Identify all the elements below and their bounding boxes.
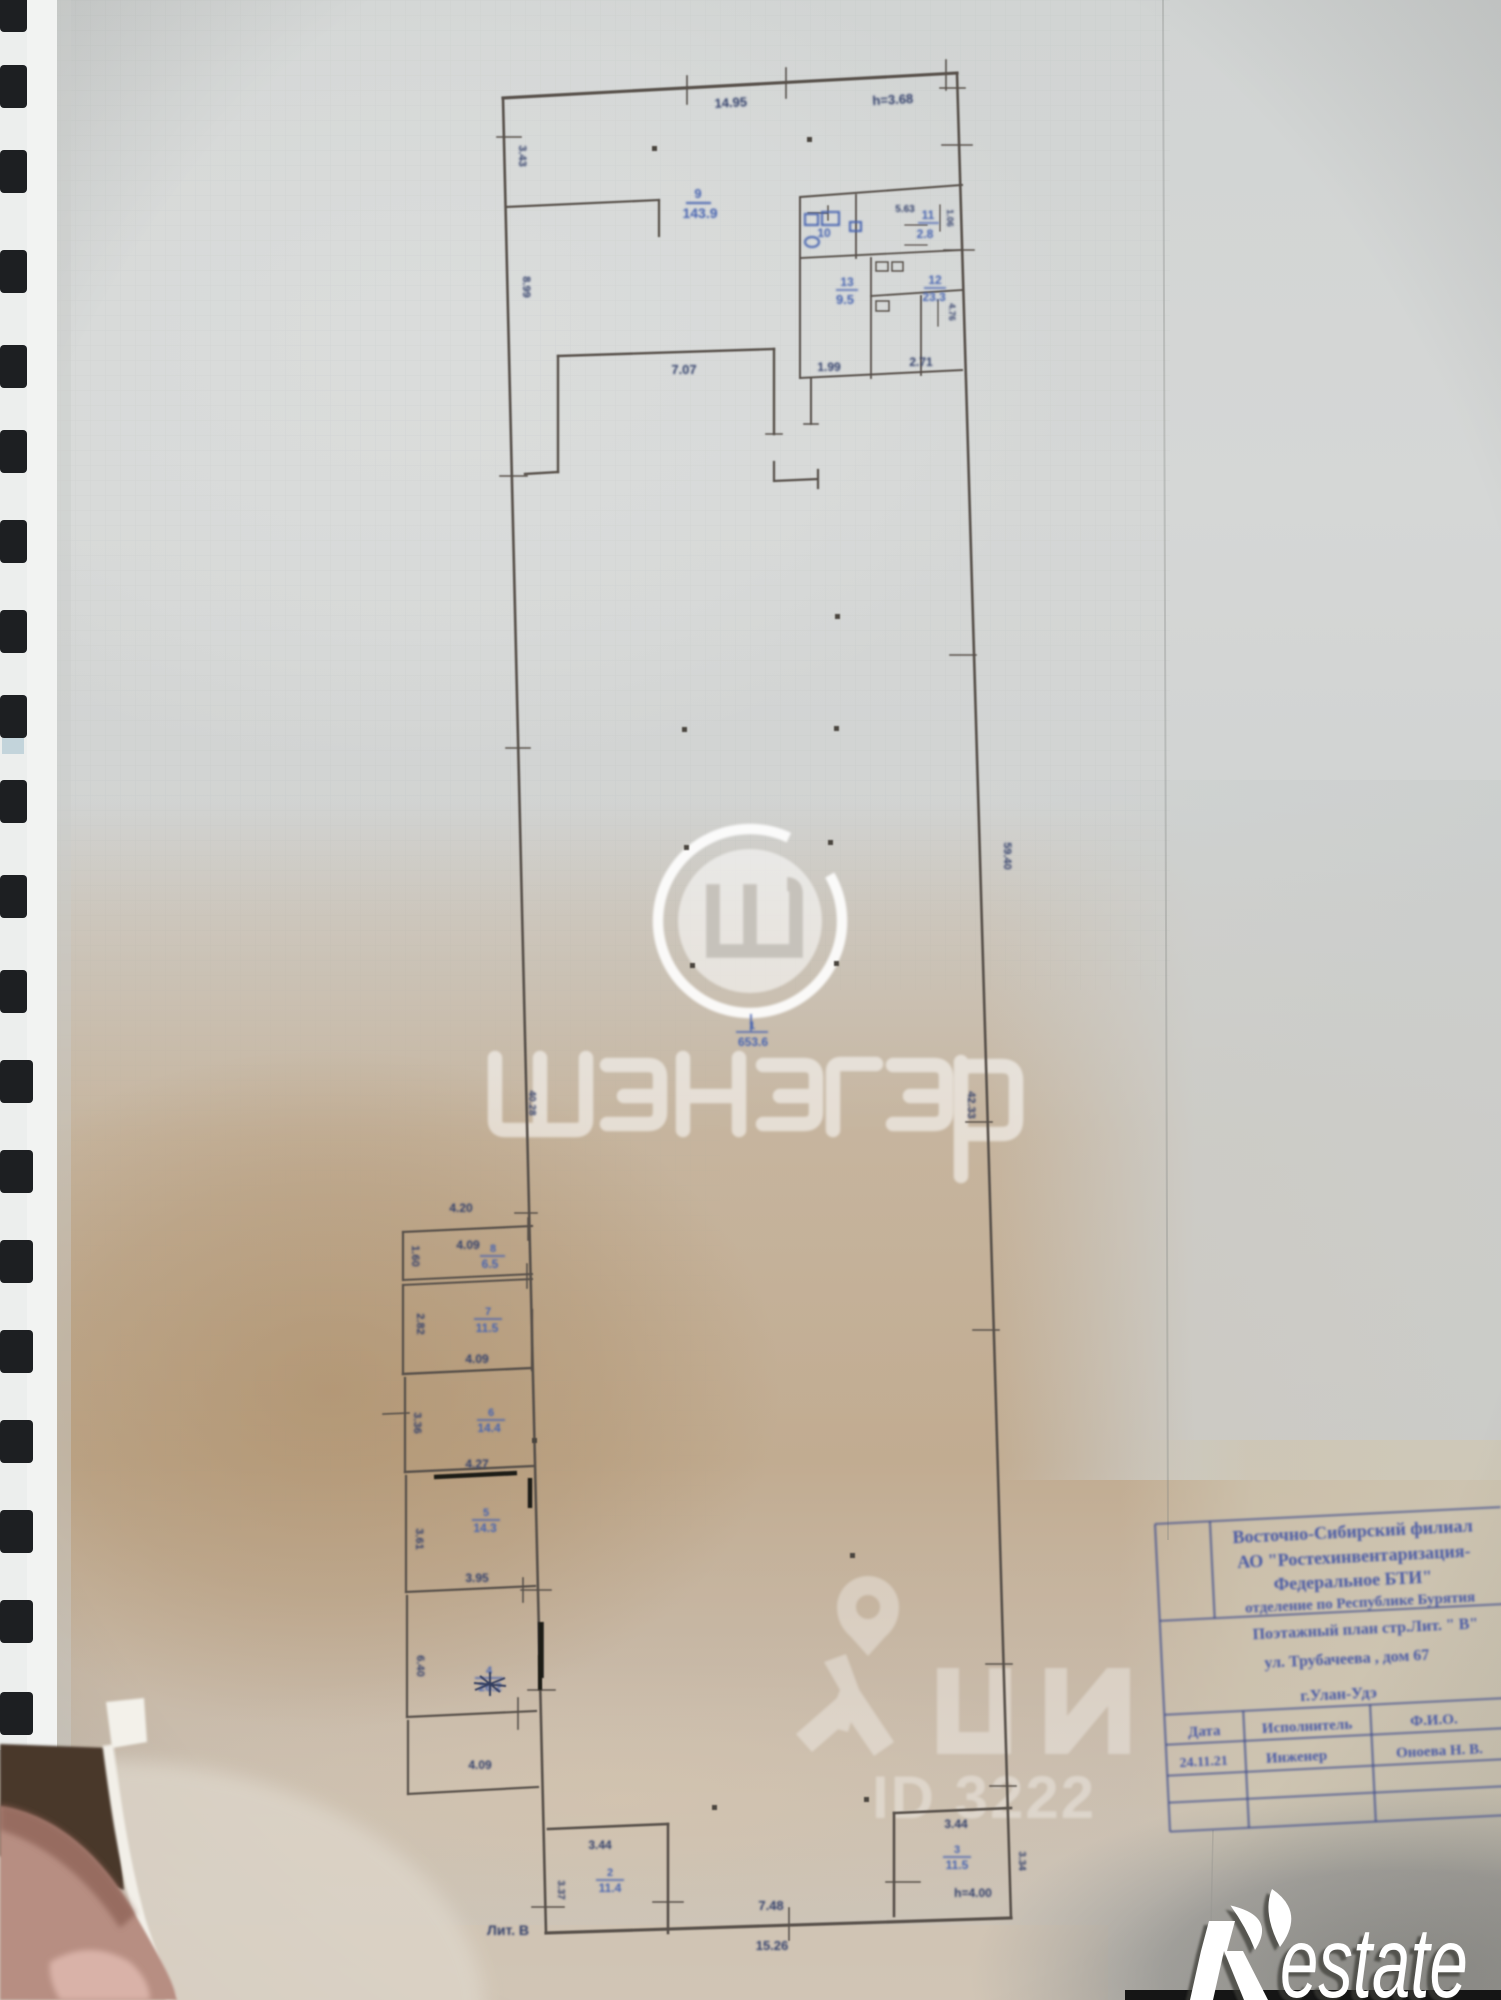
svg-text:11.4: 11.4 xyxy=(599,1881,622,1895)
svg-text:1: 1 xyxy=(749,1020,755,1032)
svg-text:11: 11 xyxy=(922,208,935,222)
svg-text:8.99: 8.99 xyxy=(520,276,532,297)
svg-text:9: 9 xyxy=(694,186,701,201)
svg-text:12: 12 xyxy=(928,273,942,287)
svg-text:4.76: 4.76 xyxy=(947,303,957,321)
svg-text:7.07: 7.07 xyxy=(671,362,696,377)
svg-text:3.36: 3.36 xyxy=(411,1412,423,1433)
svg-text:11.5: 11.5 xyxy=(946,1858,969,1872)
svg-text:1.99: 1.99 xyxy=(817,360,841,374)
svg-text:3.95: 3.95 xyxy=(465,1571,489,1585)
svg-text:2.82: 2.82 xyxy=(414,1313,426,1334)
svg-text:3: 3 xyxy=(954,1844,960,1856)
svg-text:3.43: 3.43 xyxy=(516,145,528,166)
svg-text:23.3: 23.3 xyxy=(922,290,946,304)
svg-text:1.06: 1.06 xyxy=(945,209,955,227)
svg-text:3.44: 3.44 xyxy=(944,1817,968,1831)
svg-text:40.28: 40.28 xyxy=(526,1090,537,1115)
svg-text:6.40: 6.40 xyxy=(414,1655,426,1676)
svg-text:13: 13 xyxy=(840,275,854,289)
svg-text:6.5: 6.5 xyxy=(482,1257,499,1271)
svg-text:6: 6 xyxy=(488,1407,494,1419)
svg-text:h=3.68: h=3.68 xyxy=(872,91,914,108)
svg-text:estate: estate xyxy=(1280,1907,1468,2000)
svg-text:4.09: 4.09 xyxy=(465,1352,489,1366)
svg-text:Ф.И.О.: Ф.И.О. xyxy=(1410,1711,1458,1729)
svg-text:1.60: 1.60 xyxy=(409,1245,421,1266)
svg-text:653.6: 653.6 xyxy=(738,1035,768,1049)
svg-text:3.37: 3.37 xyxy=(555,1880,566,1900)
svg-text:11.5: 11.5 xyxy=(476,1321,499,1335)
svg-text:24.11.21: 24.11.21 xyxy=(1179,1754,1228,1771)
svg-text:Лит. В: Лит. В xyxy=(487,1922,529,1938)
svg-text:14.95: 14.95 xyxy=(714,94,747,111)
svg-text:5.63: 5.63 xyxy=(895,204,915,215)
svg-text:9.5: 9.5 xyxy=(836,292,854,307)
svg-text:143.9: 143.9 xyxy=(682,205,717,221)
svg-text:7.48: 7.48 xyxy=(758,1898,783,1913)
svg-text:2.71: 2.71 xyxy=(909,355,933,369)
svg-text:4.09: 4.09 xyxy=(468,1758,492,1772)
svg-text:7: 7 xyxy=(485,1306,491,1318)
svg-text:2: 2 xyxy=(607,1867,613,1879)
svg-text:10: 10 xyxy=(817,226,831,240)
svg-text:3.44: 3.44 xyxy=(588,1838,612,1852)
svg-text:15.26: 15.26 xyxy=(756,1938,789,1953)
svg-text:59.40: 59.40 xyxy=(1001,842,1013,870)
svg-text:5: 5 xyxy=(483,1507,489,1519)
svg-text:3.34: 3.34 xyxy=(1016,1851,1027,1871)
svg-text:3.61: 3.61 xyxy=(413,1528,425,1549)
svg-text:14.4: 14.4 xyxy=(477,1421,501,1435)
svg-text:8: 8 xyxy=(490,1243,496,1255)
svg-text:4.27: 4.27 xyxy=(465,1457,489,1471)
svg-text:14.3: 14.3 xyxy=(473,1521,497,1535)
svg-text:4.20: 4.20 xyxy=(449,1201,473,1215)
svg-text:h=4.00: h=4.00 xyxy=(954,1886,992,1900)
svg-text:42.33: 42.33 xyxy=(965,1091,977,1119)
svg-text:2.8: 2.8 xyxy=(917,227,934,241)
svg-text:Дата: Дата xyxy=(1188,1723,1222,1741)
svg-text:ID 3222: ID 3222 xyxy=(872,1764,1096,1831)
svg-text:Инженер: Инженер xyxy=(1266,1748,1328,1767)
svg-text:4.09: 4.09 xyxy=(456,1238,480,1252)
